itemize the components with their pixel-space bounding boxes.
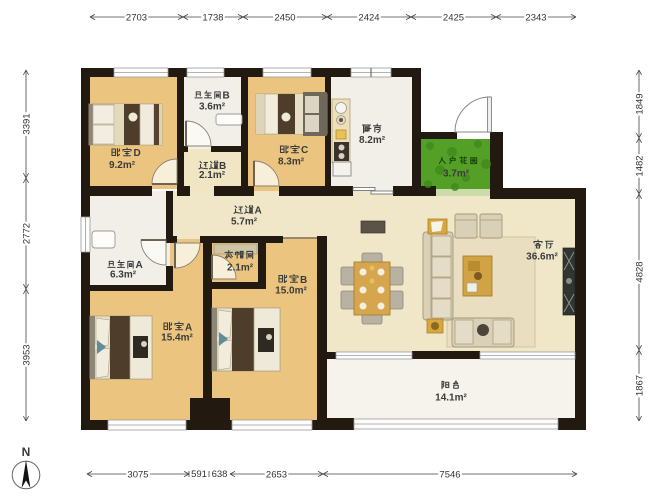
svg-text:N: N bbox=[22, 445, 31, 459]
svg-text:15.4m²: 15.4m² bbox=[161, 333, 193, 344]
svg-text:5.7m²: 5.7m² bbox=[231, 217, 258, 228]
svg-text:2703: 2703 bbox=[126, 12, 147, 23]
svg-text:D: D bbox=[134, 148, 141, 159]
svg-text:15.0m²: 15.0m² bbox=[275, 286, 307, 297]
svg-text:9.2m²: 9.2m² bbox=[109, 160, 136, 171]
svg-text:7546: 7546 bbox=[439, 469, 460, 480]
svg-text:2424: 2424 bbox=[358, 12, 379, 23]
svg-text:1482: 1482 bbox=[634, 155, 645, 176]
svg-text:1849: 1849 bbox=[634, 93, 645, 114]
svg-text:4828: 4828 bbox=[634, 261, 645, 282]
svg-text:2.1m²: 2.1m² bbox=[227, 263, 254, 274]
svg-text:A: A bbox=[136, 260, 143, 271]
svg-text:C: C bbox=[301, 145, 308, 156]
svg-text:3391: 3391 bbox=[21, 113, 32, 134]
svg-text:2772: 2772 bbox=[21, 223, 32, 244]
svg-text:638: 638 bbox=[212, 469, 228, 480]
svg-text:3075: 3075 bbox=[127, 469, 148, 480]
svg-text:3953: 3953 bbox=[21, 344, 32, 365]
svg-text:3.6m²: 3.6m² bbox=[199, 102, 226, 113]
svg-text:14.1m²: 14.1m² bbox=[435, 393, 467, 404]
svg-text:2450: 2450 bbox=[274, 12, 295, 23]
svg-text:B: B bbox=[223, 91, 230, 102]
svg-text:1738: 1738 bbox=[202, 12, 223, 23]
svg-text:A: A bbox=[255, 206, 262, 217]
svg-text:3.7m²: 3.7m² bbox=[443, 168, 470, 179]
svg-text:2343: 2343 bbox=[525, 12, 546, 23]
svg-text:6.3m²: 6.3m² bbox=[110, 270, 137, 281]
svg-text:2425: 2425 bbox=[443, 12, 464, 23]
svg-text:591: 591 bbox=[191, 469, 207, 480]
svg-text:B: B bbox=[300, 275, 307, 286]
svg-text:2653: 2653 bbox=[266, 469, 287, 480]
svg-text:1867: 1867 bbox=[634, 375, 645, 396]
svg-text:8.3m²: 8.3m² bbox=[278, 157, 305, 168]
svg-text:36.6m²: 36.6m² bbox=[526, 252, 558, 263]
svg-text:8.2m²: 8.2m² bbox=[359, 135, 386, 146]
svg-text:2.1m²: 2.1m² bbox=[199, 170, 226, 181]
